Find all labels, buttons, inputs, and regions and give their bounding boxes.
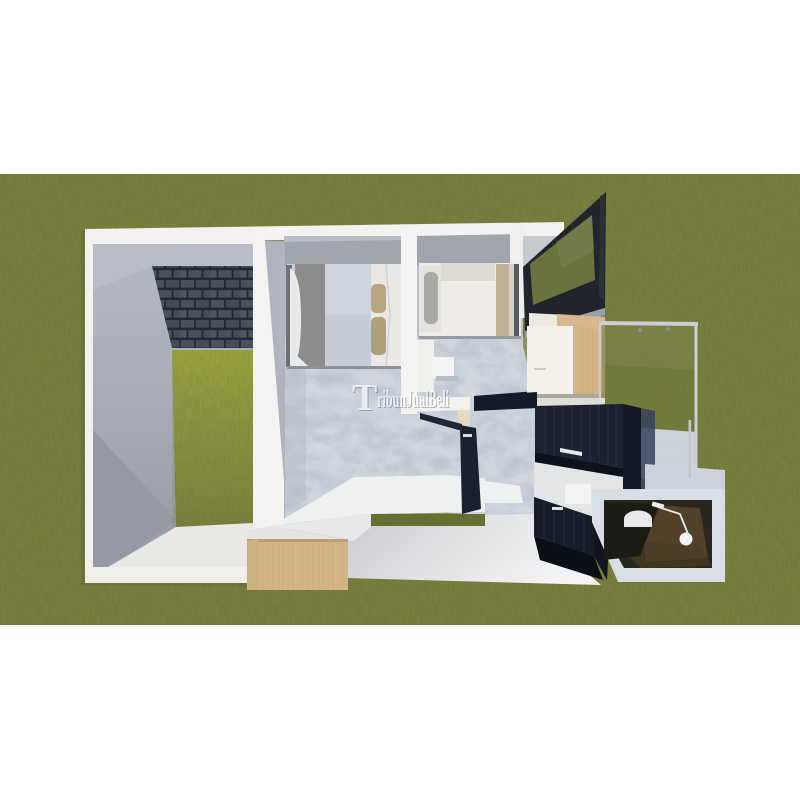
svg-text:ribunJualBeli: ribunJualBeli [377, 387, 449, 413]
svg-text:T: T [352, 377, 377, 419]
